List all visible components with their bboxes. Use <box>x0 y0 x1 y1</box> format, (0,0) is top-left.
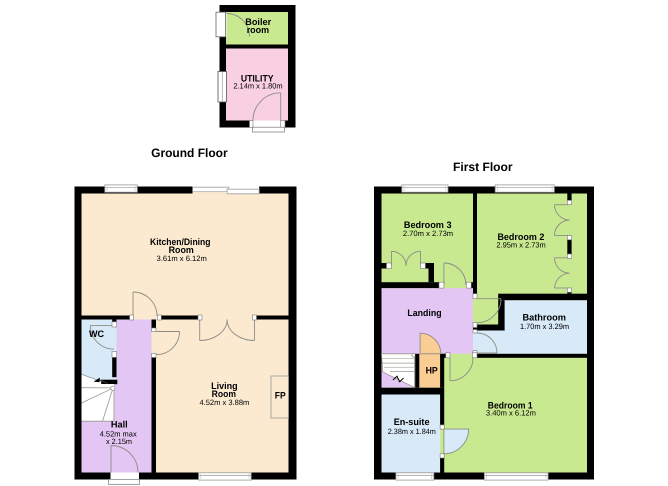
svg-text:Bathroom: Bathroom <box>522 311 566 322</box>
svg-text:3.61m x 6.12m: 3.61m x 6.12m <box>157 254 207 263</box>
svg-text:2.95m x 2.73m: 2.95m x 2.73m <box>496 240 545 249</box>
svg-text:First Floor: First Floor <box>453 160 513 174</box>
svg-text:Ground Floor: Ground Floor <box>151 146 228 160</box>
svg-text:FP: FP <box>275 390 286 401</box>
svg-text:Hall: Hall <box>111 418 128 429</box>
svg-text:4.52m x 3.88m: 4.52m x 3.88m <box>199 398 249 407</box>
svg-text:2.38m x 1.84m: 2.38m x 1.84m <box>388 427 436 436</box>
svg-text:3.40m x 6.12m: 3.40m x 6.12m <box>486 409 536 418</box>
svg-text:HP: HP <box>426 364 438 375</box>
svg-text:WC: WC <box>89 328 104 339</box>
svg-text:2.70m x 2.73m: 2.70m x 2.73m <box>403 229 453 238</box>
svg-text:En-suite: En-suite <box>394 416 430 427</box>
svg-text:Landing: Landing <box>407 307 441 318</box>
svg-text:1.70m x 3.29m: 1.70m x 3.29m <box>520 322 569 331</box>
svg-text:room: room <box>247 24 269 35</box>
svg-text:2.14m x 1.80m: 2.14m x 1.80m <box>233 82 282 91</box>
svg-text:x 2.15m: x 2.15m <box>106 437 132 446</box>
